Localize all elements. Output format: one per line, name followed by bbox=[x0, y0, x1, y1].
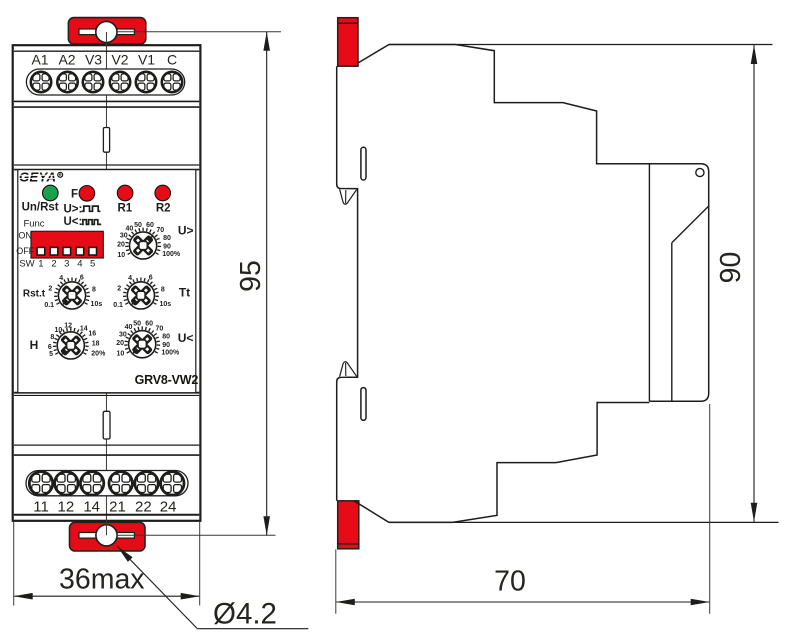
svg-text:22: 22 bbox=[135, 498, 152, 515]
svg-text:1: 1 bbox=[38, 259, 43, 270]
svg-text:24: 24 bbox=[160, 498, 177, 515]
svg-text:4: 4 bbox=[77, 259, 82, 270]
svg-text:U<:: U<: bbox=[64, 216, 83, 228]
svg-text:A2: A2 bbox=[58, 51, 75, 67]
svg-text:8: 8 bbox=[92, 287, 96, 294]
svg-text:R1: R1 bbox=[117, 203, 132, 215]
svg-text:SW: SW bbox=[19, 259, 34, 270]
svg-text:0.1: 0.1 bbox=[44, 302, 54, 309]
svg-text:90: 90 bbox=[715, 252, 747, 284]
svg-text:C: C bbox=[167, 51, 177, 67]
svg-text:10: 10 bbox=[117, 351, 125, 358]
svg-text:70: 70 bbox=[494, 566, 526, 598]
svg-text:50: 50 bbox=[133, 321, 141, 328]
svg-text:6: 6 bbox=[149, 274, 153, 281]
svg-text:2: 2 bbox=[51, 259, 56, 270]
svg-text:8: 8 bbox=[161, 287, 165, 294]
svg-text:GRV8-VW2: GRV8-VW2 bbox=[135, 373, 199, 387]
svg-text:95: 95 bbox=[235, 260, 267, 292]
svg-text:5: 5 bbox=[90, 259, 95, 270]
svg-text:30: 30 bbox=[120, 233, 128, 240]
svg-text:V1: V1 bbox=[138, 51, 155, 67]
svg-text:100%: 100% bbox=[162, 251, 181, 258]
svg-text:100%: 100% bbox=[161, 350, 180, 357]
svg-text:U<: U< bbox=[178, 331, 194, 345]
svg-text:10: 10 bbox=[117, 252, 125, 259]
svg-text:U>: U> bbox=[178, 223, 194, 237]
svg-text:Func: Func bbox=[23, 219, 44, 230]
svg-text:2: 2 bbox=[117, 285, 121, 292]
svg-text:3: 3 bbox=[64, 259, 69, 270]
svg-text:OFF: OFF bbox=[16, 246, 34, 256]
svg-text:20%: 20% bbox=[91, 350, 106, 357]
svg-text:0.1: 0.1 bbox=[113, 302, 123, 309]
svg-text:20: 20 bbox=[117, 242, 125, 249]
svg-text:12: 12 bbox=[64, 323, 72, 330]
svg-text:ON: ON bbox=[18, 230, 32, 240]
svg-text:A1: A1 bbox=[31, 51, 48, 67]
svg-text:50: 50 bbox=[134, 222, 142, 229]
svg-text:10s: 10s bbox=[91, 301, 103, 308]
svg-text:6: 6 bbox=[80, 274, 84, 281]
svg-text:Un/Rst: Un/Rst bbox=[22, 202, 59, 214]
svg-text:90: 90 bbox=[163, 243, 171, 250]
svg-text:H: H bbox=[30, 338, 39, 352]
svg-text:16: 16 bbox=[88, 331, 96, 338]
svg-text:60: 60 bbox=[146, 222, 154, 229]
svg-text:4: 4 bbox=[128, 275, 132, 282]
svg-text:4: 4 bbox=[59, 275, 63, 282]
svg-text:60: 60 bbox=[145, 321, 153, 328]
svg-text:12: 12 bbox=[58, 498, 75, 515]
svg-text:70: 70 bbox=[156, 326, 164, 333]
svg-text:Rst.t: Rst.t bbox=[23, 289, 46, 300]
svg-text:6: 6 bbox=[48, 344, 52, 351]
svg-text:V3: V3 bbox=[85, 51, 102, 67]
svg-text:30: 30 bbox=[119, 331, 127, 338]
svg-text:40: 40 bbox=[125, 324, 133, 331]
svg-text:14: 14 bbox=[83, 498, 100, 515]
svg-text:20: 20 bbox=[116, 340, 124, 347]
svg-text:80: 80 bbox=[163, 235, 171, 242]
svg-text:2: 2 bbox=[48, 285, 52, 292]
svg-text:GEYA: GEYA bbox=[19, 170, 56, 185]
svg-text:R2: R2 bbox=[156, 203, 171, 215]
svg-text:V2: V2 bbox=[111, 51, 128, 67]
svg-text:11: 11 bbox=[33, 498, 49, 515]
svg-text:21: 21 bbox=[109, 498, 126, 515]
svg-text:36max: 36max bbox=[59, 563, 145, 595]
svg-text:90: 90 bbox=[162, 342, 170, 349]
svg-text:70: 70 bbox=[156, 227, 164, 234]
svg-text:U>:: U>: bbox=[64, 204, 83, 216]
svg-text:10s: 10s bbox=[159, 301, 171, 308]
svg-text:80: 80 bbox=[162, 334, 170, 341]
svg-text:F: F bbox=[71, 189, 78, 201]
svg-text:Tt: Tt bbox=[179, 286, 190, 300]
svg-text:10: 10 bbox=[55, 327, 63, 334]
svg-text:8: 8 bbox=[50, 334, 54, 341]
svg-text:40: 40 bbox=[126, 226, 134, 233]
svg-text:Ø4.2: Ø4.2 bbox=[213, 598, 277, 631]
svg-text:14: 14 bbox=[80, 326, 88, 333]
svg-text:18: 18 bbox=[92, 341, 100, 348]
svg-text:5: 5 bbox=[49, 351, 53, 358]
